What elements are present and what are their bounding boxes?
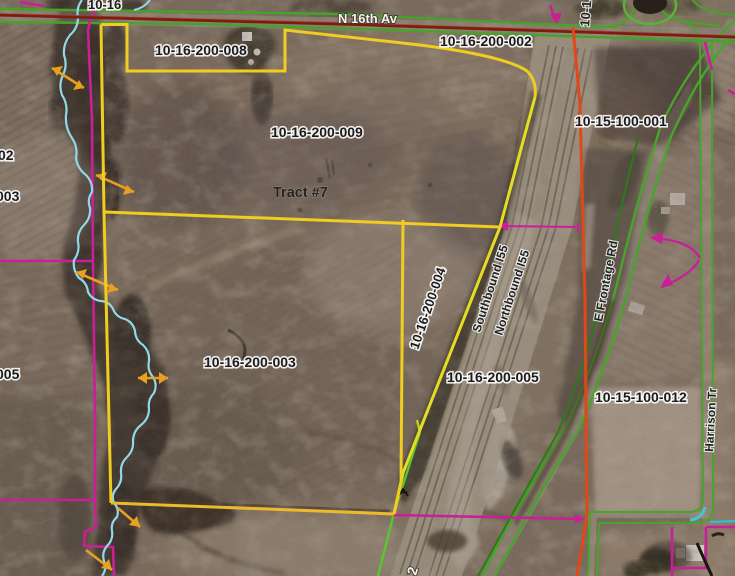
- svg-text:02: 02: [0, 147, 14, 163]
- svg-text:10-16-200-009: 10-16-200-009: [271, 124, 363, 140]
- svg-text:N 16th Av: N 16th Av: [338, 11, 398, 26]
- svg-text:10-16-200-008: 10-16-200-008: [155, 42, 247, 58]
- svg-text:10-15-100-012: 10-15-100-012: [595, 389, 687, 405]
- svg-text:10-16-200-005: 10-16-200-005: [447, 369, 539, 385]
- svg-text:Tract #7: Tract #7: [273, 185, 328, 201]
- svg-text:005: 005: [0, 366, 20, 382]
- svg-text:003: 003: [0, 188, 20, 204]
- svg-text:10-1: 10-1: [577, 0, 594, 27]
- svg-text:10-16-200-003: 10-16-200-003: [204, 354, 296, 370]
- svg-text:10-16: 10-16: [88, 0, 121, 12]
- svg-text:10-16-200-002: 10-16-200-002: [440, 33, 532, 49]
- svg-text:10-15-100-001: 10-15-100-001: [575, 113, 667, 129]
